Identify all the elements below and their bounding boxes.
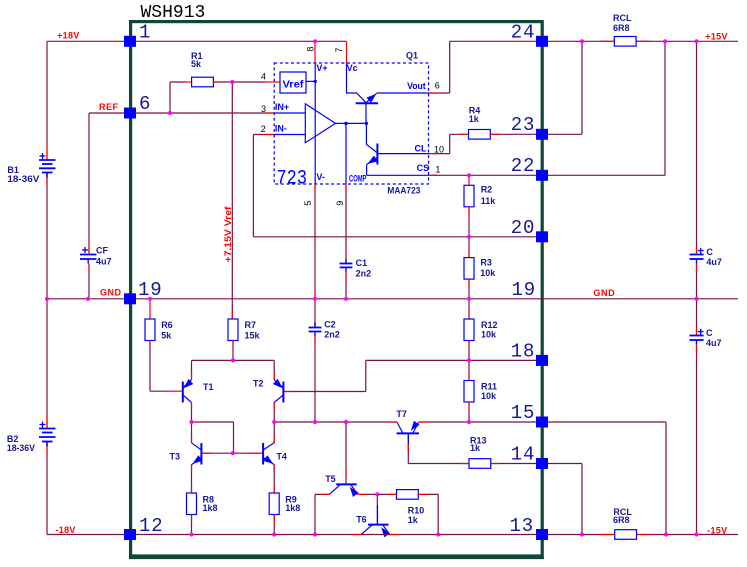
svg-text:7: 7 [334,48,344,53]
svg-text:19: 19 [512,279,536,301]
svg-text:GND: GND [100,288,122,298]
svg-text:+15V: +15V [705,32,727,42]
svg-text:CS: CS [417,163,430,173]
svg-text:14: 14 [511,444,535,466]
svg-text:8: 8 [306,47,316,52]
svg-text:1k: 1k [469,114,480,124]
svg-text:5k: 5k [191,59,202,69]
svg-text:V-: V- [316,172,325,182]
svg-text:V+: V+ [316,63,327,73]
svg-text:R2: R2 [481,185,493,195]
svg-text:C: C [706,247,713,257]
svg-text:1: 1 [435,165,440,175]
svg-text:C2: C2 [324,319,336,329]
svg-text:15k: 15k [245,331,261,341]
svg-text:Vout: Vout [407,81,426,91]
svg-text:T2: T2 [253,379,264,389]
svg-text:-18V: -18V [56,525,76,535]
svg-text:12: 12 [139,515,163,537]
svg-text:REF: REF [99,102,119,112]
svg-text:13: 13 [510,515,534,537]
svg-text:IN-: IN- [275,124,287,134]
svg-text:R3: R3 [480,258,492,268]
svg-text:3: 3 [261,104,266,114]
svg-text:T6: T6 [356,514,367,524]
svg-text:T3: T3 [170,452,181,462]
svg-text:10k: 10k [480,268,496,278]
svg-text:9: 9 [335,201,345,206]
svg-text:RCL: RCL [613,13,632,23]
svg-text:20: 20 [511,217,535,239]
svg-text:2n2: 2n2 [324,330,340,340]
svg-text:Vc: Vc [347,63,358,73]
svg-text:6R8: 6R8 [613,23,630,33]
svg-text:1k8: 1k8 [203,503,218,513]
svg-text:R7: R7 [245,320,257,330]
svg-text:T5: T5 [325,474,336,484]
svg-text:Vref: Vref [283,80,305,91]
svg-text:2: 2 [261,124,266,134]
svg-text:5: 5 [303,201,313,206]
svg-text:22: 22 [511,155,535,177]
svg-text:4u7: 4u7 [706,257,722,267]
svg-text:T1: T1 [203,382,214,392]
svg-text:1k8: 1k8 [285,503,300,513]
svg-text:6R8: 6R8 [613,515,630,525]
svg-text:+18V: +18V [57,31,79,41]
svg-text:15: 15 [511,402,535,424]
svg-text:10k: 10k [481,391,497,401]
svg-text:MAA723: MAA723 [387,185,420,195]
svg-text:6: 6 [139,93,151,115]
svg-text:6: 6 [435,81,440,91]
svg-text:24: 24 [511,22,535,44]
svg-text:1k: 1k [408,515,419,525]
svg-text:4u7: 4u7 [706,338,722,348]
svg-text:R12: R12 [481,320,498,330]
svg-text:T7: T7 [396,409,407,419]
svg-text:4: 4 [261,72,266,82]
svg-text:10: 10 [434,144,444,154]
svg-text:18-36V: 18-36V [7,174,39,184]
svg-text:10k: 10k [481,330,497,340]
svg-text:C: C [706,328,713,338]
svg-text:COMP: COMP [349,174,366,184]
svg-text:IN+: IN+ [275,102,289,112]
svg-text:WSH913: WSH913 [141,3,206,23]
svg-text:23: 23 [511,114,535,136]
svg-text:18: 18 [511,340,535,362]
svg-text:723: 723 [277,168,308,191]
svg-text:1: 1 [139,22,151,44]
svg-text:CL: CL [415,143,427,153]
svg-text:11k: 11k [481,196,497,206]
svg-text:18-36V: 18-36V [7,443,35,453]
svg-text:-15V: -15V [707,525,727,535]
svg-text:GND: GND [593,288,615,298]
svg-text:5k: 5k [161,331,172,341]
svg-text:T4: T4 [276,452,287,462]
svg-text:C1: C1 [356,258,368,268]
svg-text:4u7: 4u7 [96,256,112,266]
svg-text:2n2: 2n2 [356,268,372,278]
svg-text:R11: R11 [481,382,497,392]
svg-text:+7.15V Vref: +7.15V Vref [223,205,233,262]
svg-text:1k: 1k [470,443,481,453]
svg-text:CF: CF [96,246,108,256]
svg-text:19: 19 [138,279,162,301]
svg-text:Q1: Q1 [406,51,418,61]
svg-text:R6: R6 [161,320,173,330]
